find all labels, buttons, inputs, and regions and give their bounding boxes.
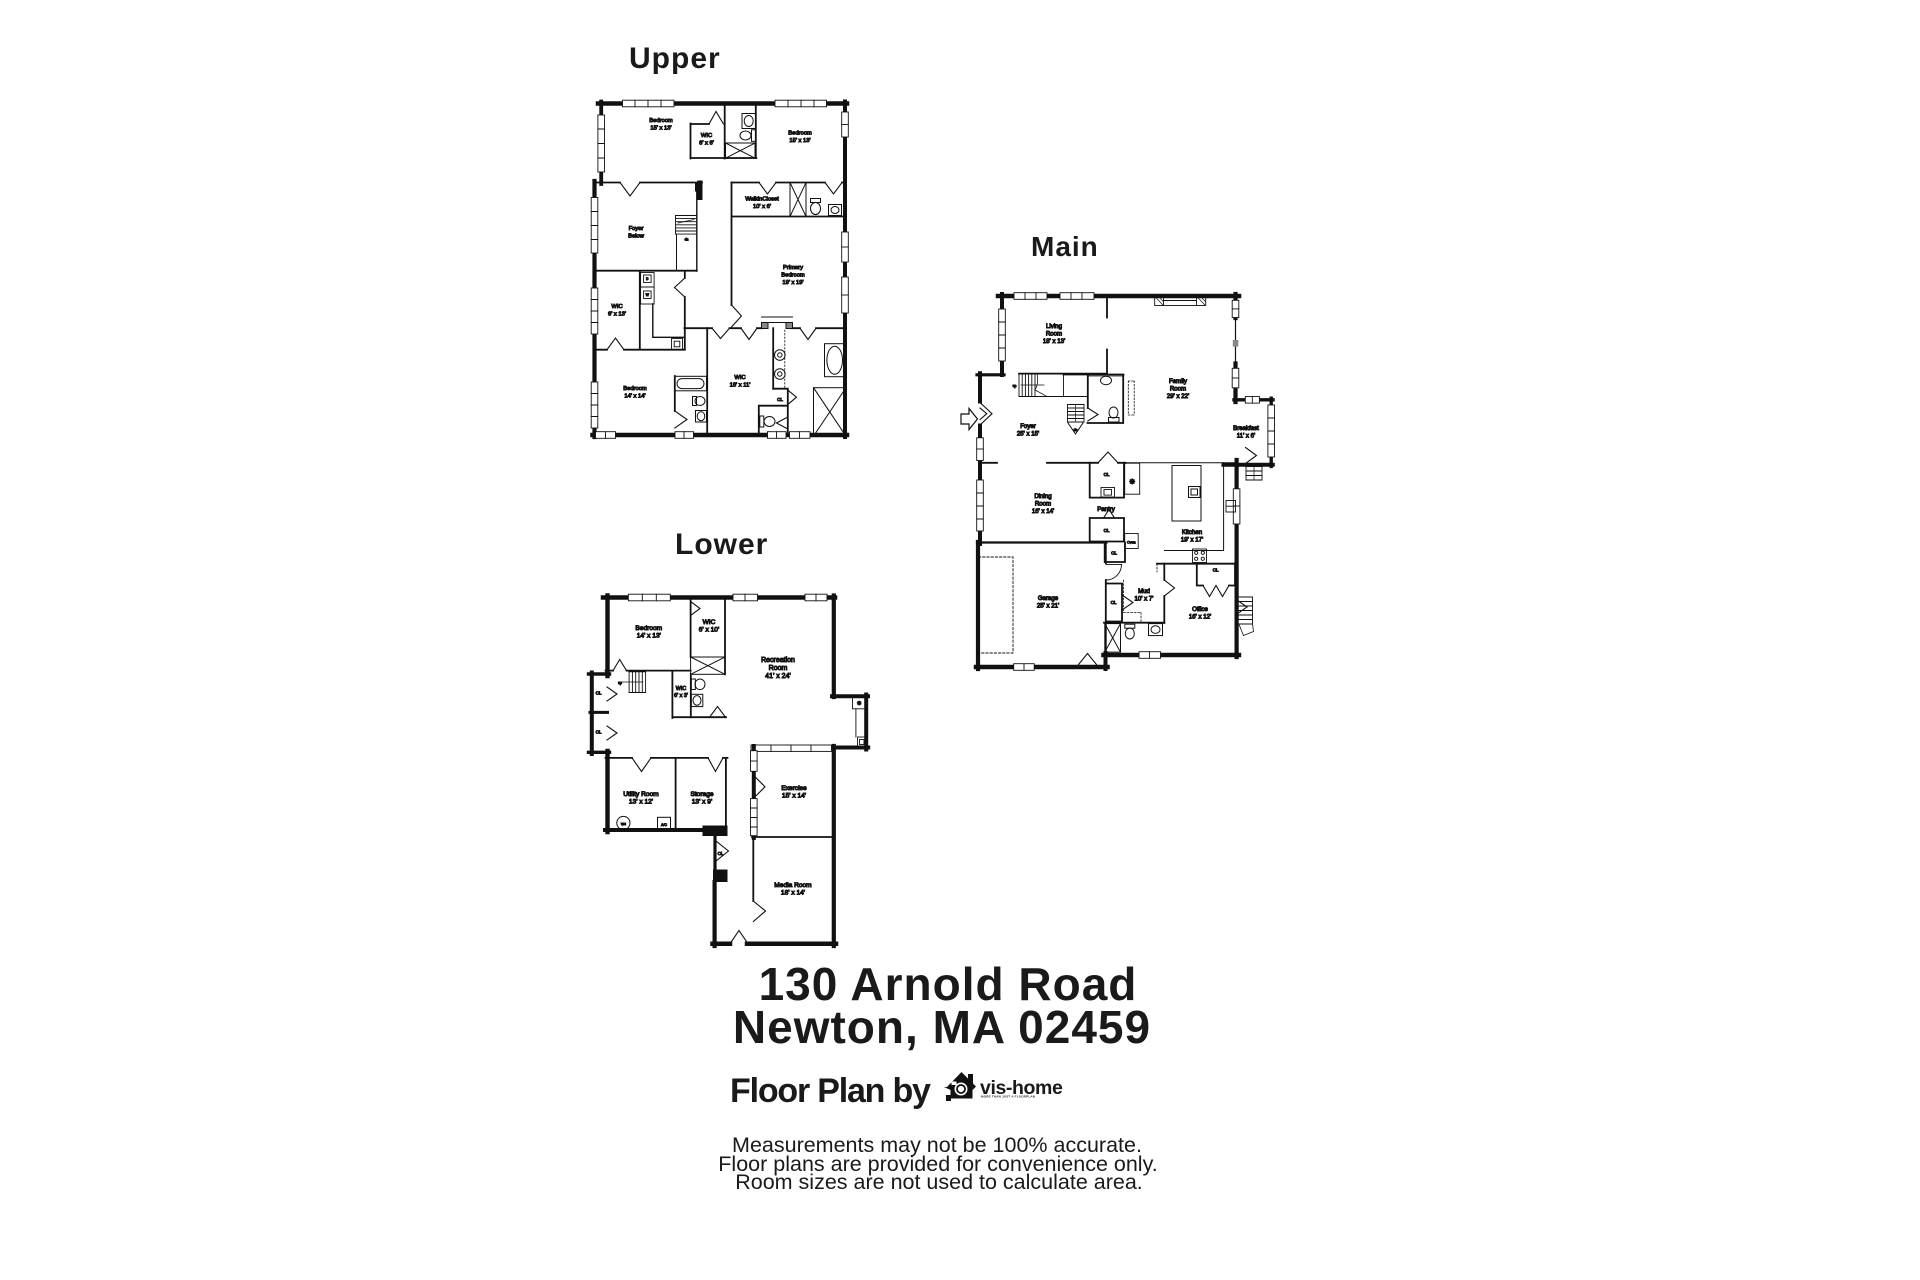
- svg-text:14' x 14': 14' x 14': [624, 394, 645, 400]
- svg-text:dn: dn: [1074, 428, 1078, 432]
- svg-text:CL: CL: [1111, 551, 1117, 556]
- svg-text:18' x 11': 18' x 11': [730, 383, 751, 389]
- svg-text:Exercise: Exercise: [781, 785, 807, 792]
- svg-text:CL: CL: [596, 691, 602, 696]
- svg-text:Foyer: Foyer: [1020, 423, 1036, 430]
- svg-text:Media Room: Media Room: [774, 882, 812, 889]
- svg-text:11' x 6': 11' x 6': [1237, 433, 1255, 440]
- svg-text:Room: Room: [1035, 501, 1051, 508]
- svg-text:15' x 13': 15' x 13': [789, 138, 810, 144]
- svg-text:Office: Office: [1192, 606, 1208, 613]
- svg-text:6' x 10': 6' x 10': [699, 627, 719, 634]
- svg-text:19' x 17': 19' x 17': [1181, 537, 1203, 544]
- svg-text:Bedroom: Bedroom: [781, 273, 805, 279]
- svg-text:up: up: [1013, 384, 1017, 388]
- svg-text:Garage: Garage: [1038, 595, 1059, 602]
- svg-text:10' x 6': 10' x 6': [753, 204, 771, 210]
- svg-text:16' x 12': 16' x 12': [1189, 614, 1211, 621]
- svg-text:6' x 6': 6' x 6': [699, 141, 714, 147]
- svg-text:Bedroom: Bedroom: [788, 131, 812, 137]
- svg-text:25' x 15': 25' x 15': [1017, 431, 1039, 438]
- svg-text:16' x 14': 16' x 14': [1032, 508, 1054, 515]
- svg-text:Recreation: Recreation: [761, 657, 795, 664]
- svg-text:CL: CL: [596, 730, 602, 735]
- svg-text:Room: Room: [1046, 331, 1062, 338]
- svg-text:15' x 14': 15' x 14': [782, 793, 806, 800]
- svg-text:41' x 24': 41' x 24': [765, 673, 791, 680]
- svg-text:13' x 9': 13' x 9': [692, 799, 712, 806]
- svg-text:Bedroom: Bedroom: [623, 386, 647, 392]
- svg-text:Dining: Dining: [1034, 493, 1051, 500]
- svg-text:Kitchen: Kitchen: [1182, 529, 1202, 536]
- svg-text:19' x 19': 19' x 19': [782, 280, 803, 286]
- svg-text:Lower: Lower: [675, 528, 768, 561]
- svg-text:6' x 13': 6' x 13': [608, 312, 626, 318]
- svg-text:Room: Room: [769, 665, 788, 672]
- svg-text:25' x 21': 25' x 21': [1037, 603, 1059, 610]
- svg-text:up: up: [618, 681, 622, 685]
- svg-text:Foyer: Foyer: [629, 226, 644, 232]
- svg-text:Mud: Mud: [1138, 588, 1150, 595]
- svg-text:Oven: Oven: [1127, 541, 1136, 545]
- svg-text:Bedroom: Bedroom: [649, 118, 673, 124]
- svg-text:18' x 14': 18' x 14': [781, 890, 805, 897]
- svg-text:MORE THAN JUST A FLOORPLAN: MORE THAN JUST A FLOORPLAN: [981, 1095, 1035, 1099]
- svg-text:Main: Main: [1031, 231, 1099, 262]
- svg-text:WH: WH: [621, 822, 626, 826]
- svg-text:Upper: Upper: [629, 42, 721, 75]
- svg-text:❋: ❋: [857, 701, 862, 707]
- svg-text:Primary: Primary: [783, 265, 803, 271]
- svg-text:Breakfast: Breakfast: [1233, 425, 1259, 432]
- svg-text:❋: ❋: [1129, 478, 1135, 486]
- svg-text:WIC: WIC: [676, 686, 687, 692]
- svg-text:CL: CL: [1104, 472, 1110, 477]
- svg-text:29' x 22': 29' x 22': [1167, 393, 1189, 400]
- svg-text:Utility Room: Utility Room: [623, 791, 659, 798]
- svg-text:WIC: WIC: [701, 133, 712, 139]
- svg-text:18' x 13': 18' x 13': [1043, 338, 1065, 345]
- svg-text:Below: Below: [628, 234, 645, 240]
- svg-text:WIC: WIC: [611, 304, 622, 310]
- svg-text:W: W: [646, 293, 649, 297]
- svg-text:10' x 7': 10' x 7': [1135, 596, 1154, 603]
- svg-text:Newton, MA 02459: Newton, MA 02459: [733, 1001, 1151, 1053]
- svg-text:Bedroom: Bedroom: [635, 625, 662, 632]
- svg-text:6' x 3': 6' x 3': [674, 693, 688, 699]
- svg-text:CL: CL: [1104, 528, 1110, 533]
- svg-text:Floor Plan by: Floor Plan by: [730, 1072, 931, 1110]
- svg-text:A/C: A/C: [661, 823, 667, 827]
- svg-text:dn: dn: [685, 238, 689, 242]
- svg-text:Room: Room: [1170, 386, 1186, 393]
- svg-text:Room sizes are not used to cal: Room sizes are not used to calculate are…: [735, 1170, 1143, 1194]
- svg-text:Family: Family: [1169, 378, 1188, 385]
- svg-text:13' x 12': 13' x 12': [629, 799, 653, 806]
- svg-text:15' x 13': 15' x 13': [650, 126, 671, 132]
- svg-text:CL: CL: [1213, 568, 1219, 573]
- svg-text:Storage: Storage: [690, 791, 713, 798]
- svg-text:CL: CL: [777, 397, 783, 402]
- svg-text:WIC: WIC: [703, 619, 716, 626]
- svg-text:WalkinCloset: WalkinCloset: [745, 197, 779, 203]
- svg-text:CL: CL: [1111, 600, 1117, 605]
- svg-text:Pantry: Pantry: [1097, 506, 1116, 513]
- svg-text:Living: Living: [1046, 323, 1062, 330]
- svg-text:WIC: WIC: [734, 375, 745, 381]
- svg-text:14' x 13': 14' x 13': [637, 633, 661, 640]
